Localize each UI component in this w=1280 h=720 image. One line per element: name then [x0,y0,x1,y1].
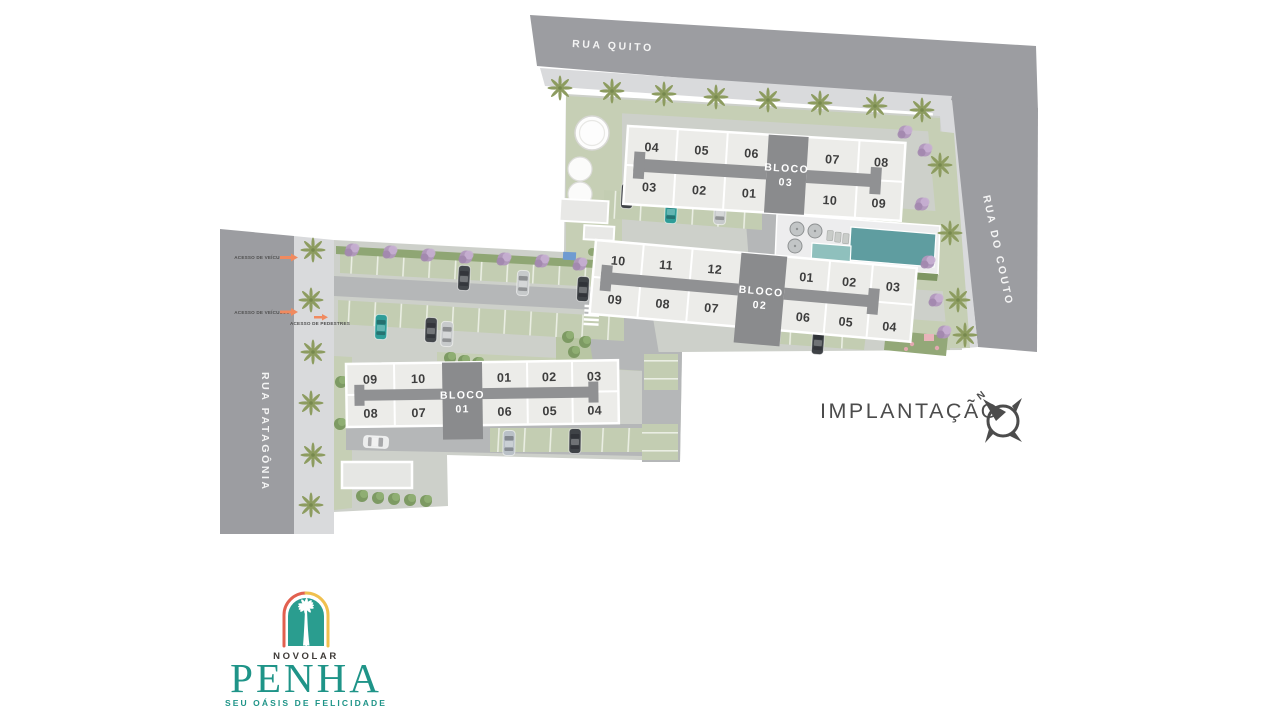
site-plan-canvas: 04 05 06 07 08 03 02 01 10 09 BLOCO 03 1… [0,0,1280,720]
flower-bed [924,334,934,341]
unit-number: 04 [587,403,602,417]
access-pedestrians-label: ACESSO DE PEDESTRES [290,321,350,326]
bloco-02-number: 02 [752,299,767,312]
unit-number: 02 [692,183,707,198]
bloco-01-label: BLOCO [440,389,485,402]
site-plan-page: 04 05 06 07 08 03 02 01 10 09 BLOCO 03 1… [0,0,1280,720]
umbrella-icon [808,224,822,238]
car [441,321,454,346]
unit-number: 02 [841,275,857,290]
unit-number: 06 [795,310,811,325]
car [457,265,470,291]
logo: NOVOLAR PENHA SEU OÁSIS DE FELICIDADE [225,593,387,708]
utility-box [563,252,576,261]
unit-number: 08 [874,155,889,170]
car [363,435,389,448]
unit-number: 10 [822,193,837,208]
umbrella-icon [790,222,804,236]
water-tank-small [568,157,592,181]
car [425,317,438,342]
bloco-03-number: 03 [778,176,793,189]
pergola-building [342,462,412,488]
street-rua-patagonia [220,229,294,534]
unit-number: 05 [542,404,557,418]
unit-number: 12 [707,262,723,277]
car [576,276,589,302]
unit-number: 08 [363,407,378,421]
umbrella-icon [788,239,802,253]
unit-number: 07 [411,406,426,420]
unit-number: 03 [642,180,657,195]
car [503,430,515,455]
unit-number: 07 [704,301,720,316]
sidewalk-patagonia [294,236,334,534]
unit-number: 06 [497,405,512,419]
unit-number: 10 [411,372,426,386]
building-bloco-03: 04 05 06 07 08 03 02 01 10 09 BLOCO 03 [623,126,905,221]
car [375,314,388,339]
unit-number: 11 [659,258,674,273]
unit-number: 08 [655,296,671,311]
unit-number: 01 [497,371,512,385]
unit-number: 01 [799,270,815,285]
unit-number: 04 [882,319,898,334]
logo-tagline: SEU OÁSIS DE FELICIDADE [225,698,387,708]
unit-number: 03 [587,369,602,383]
car [516,270,529,296]
unit-number: 10 [610,253,626,268]
service-building [584,225,615,241]
logo-name: PENHA [230,655,382,701]
street-label-rua-patagonia: RUA PATAGÔNIA [259,372,272,492]
unit-number: 09 [607,292,623,307]
unit-number: 03 [885,279,901,294]
unit-number: 06 [744,146,759,161]
unit-number: 07 [825,152,840,167]
service-building [559,199,608,223]
unit-number: 02 [542,370,557,384]
unit-number: 09 [363,373,378,387]
unit-number: 05 [694,143,709,158]
bloco-01-number: 01 [455,403,470,415]
unit-number: 01 [741,186,756,201]
plan-title: IMPLANTAÇÃO [820,398,1000,423]
unit-number: 04 [644,140,659,155]
unit-number: 05 [838,314,854,329]
unit-number: 09 [871,196,886,211]
car [569,428,581,453]
